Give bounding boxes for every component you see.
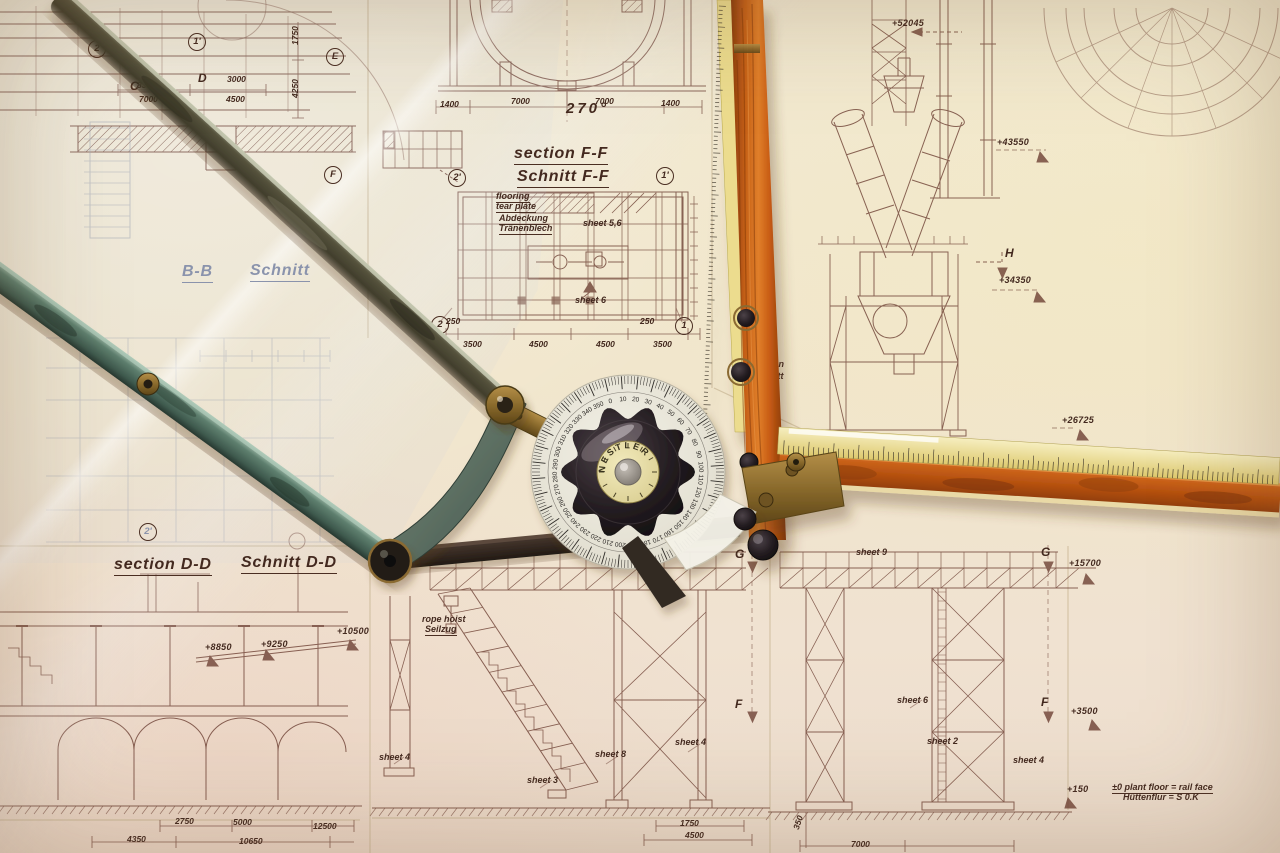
- drafting-arm-lower: [0, 255, 404, 576]
- arm-screw: [137, 373, 159, 395]
- svg-text:110: 110: [696, 474, 704, 485]
- arm-pivot-upper: [486, 386, 524, 424]
- horizontal-rulers: [742, 427, 1280, 560]
- svg-text:10: 10: [619, 396, 627, 404]
- svg-text:280: 280: [552, 471, 560, 483]
- clamp-knob: [748, 530, 778, 560]
- svg-text:100: 100: [696, 461, 704, 473]
- svg-text:20: 20: [632, 396, 640, 404]
- protractor-head: 0102030405060708090100110120130140150160…: [512, 356, 756, 608]
- center-button: [615, 459, 641, 485]
- arm-pivot-lower: [369, 540, 411, 582]
- drafting-machine: 0102030405060708090100110120130140150160…: [0, 0, 1280, 853]
- drafting-table-photo: section F-FSchnitt F-Fsection D-DSchnitt…: [0, 0, 1280, 853]
- svg-text:290: 290: [552, 458, 560, 470]
- side-knob: [734, 508, 756, 530]
